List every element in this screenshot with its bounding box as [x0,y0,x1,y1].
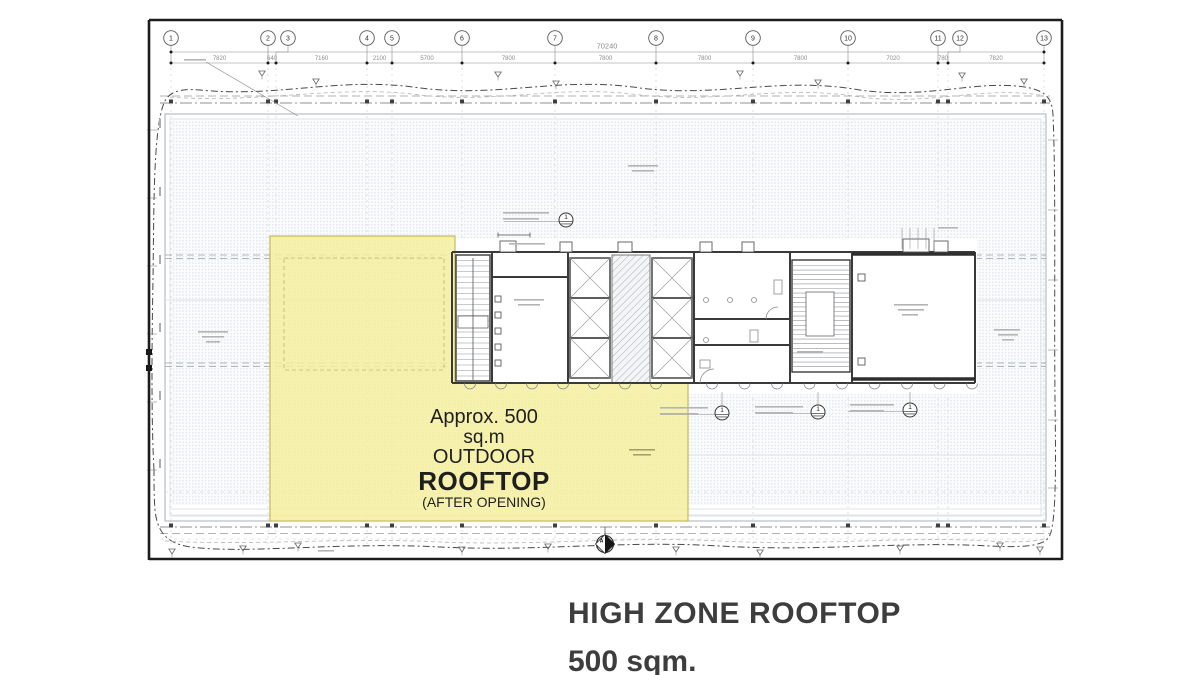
segment-dimension: 7160 [315,56,329,62]
segment-dimension: 7820 [989,56,1003,62]
grid-bubble-label: 1 [169,36,173,43]
compass-label: A [600,539,604,545]
segment-dimension: 7800 [698,56,712,62]
grid-bubble-label: 2 [266,36,270,43]
grid-bubble-label: 12 [956,36,964,43]
segment-dimension: 7800 [794,56,808,62]
building-footprint [450,238,977,394]
callout-number: 1 [816,406,820,413]
caption-block: HIGH ZONE ROOFTOP 500 sqm. [568,597,901,675]
highlight-line-1: Approx. 500 [384,407,584,428]
page: 70240 7820640716021005700780078007800780… [0,0,1200,675]
grid-bubble-label: 8 [654,36,658,43]
segment-dimension: 780 [938,56,949,62]
grid-bubble-label: 4 [365,36,369,43]
segment-dimension: 7800 [599,56,613,62]
grid-bubble-label: 11 [934,36,941,43]
callout-number: 1 [720,407,724,414]
segment-dimension: 640 [267,56,278,62]
grid-bubble-label: 3 [286,36,290,43]
rooftop-highlight-label: Approx. 500 sq.m OUTDOOR ROOFTOP (AFTER … [384,407,584,511]
segment-dimension: 2100 [373,56,387,62]
highlight-line-5: (AFTER OPENING) [384,494,584,511]
callout-number: 1 [908,404,912,411]
caption-subtitle: 500 sqm. [568,645,901,675]
floor-plan-drawing: 70240 7820640716021005700780078007800780… [0,0,1200,675]
grid-bubble-label: 7 [553,36,557,43]
total-dimension: 70240 [597,42,618,51]
grid-bubble-label: 10 [844,36,852,43]
highlight-line-2: sq.m [384,428,584,447]
caption-title: HIGH ZONE ROOFTOP [568,597,901,631]
grid-bubble-label: 9 [751,36,755,43]
highlight-line-3: OUTDOOR [384,447,584,468]
roof-opening-hatch [612,255,650,383]
callout-number: 1 [564,214,568,221]
segment-dimension: 7820 [213,56,227,62]
segment-dimension: 7020 [886,56,900,62]
grid-bubble-label: 13 [1040,36,1048,43]
grid-bubble-label: 5 [390,36,394,43]
segment-dimension: 7800 [502,56,516,62]
segment-dimension: 5700 [420,56,434,62]
highlight-line-4: ROOFTOP [384,468,584,494]
grid-bubble-label: 6 [460,36,464,43]
